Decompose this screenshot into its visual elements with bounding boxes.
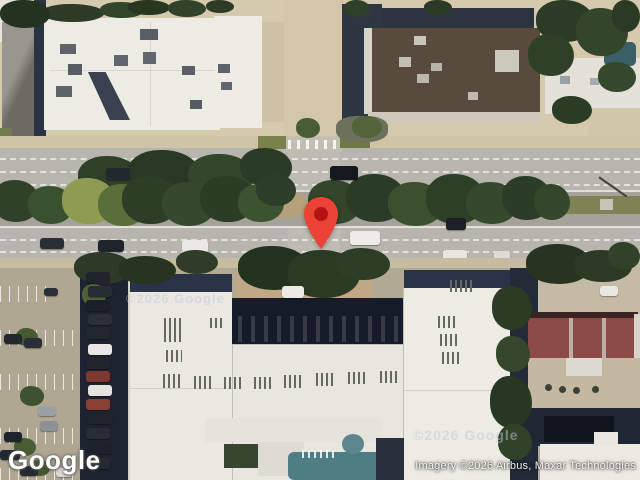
- white-tab-se: [594, 432, 618, 446]
- tree: [42, 4, 104, 22]
- tree: [0, 0, 50, 28]
- tree: [528, 34, 574, 76]
- lot-stripes: [0, 374, 92, 390]
- roof-vent: [380, 371, 400, 383]
- tree: [612, 0, 640, 32]
- pin-body: [304, 197, 338, 249]
- parked-car: [86, 428, 110, 439]
- roof-vent: [254, 377, 274, 389]
- tree: [118, 256, 176, 284]
- tree: [552, 96, 592, 124]
- car: [282, 286, 304, 298]
- plaza-dot: [559, 386, 566, 393]
- tree: [490, 376, 532, 428]
- roof-unit: [56, 86, 72, 97]
- imagery-attribution: Imagery ©2026 Airbus, Maxar Technologies: [415, 460, 636, 472]
- parked-car: [86, 399, 110, 410]
- tree: [20, 386, 44, 406]
- gray-building: [2, 22, 36, 136]
- google-logo[interactable]: Google: [8, 445, 101, 476]
- c-garage-slots: [238, 316, 398, 342]
- tree: [336, 248, 390, 280]
- tree: [598, 62, 636, 92]
- tree: [206, 0, 234, 13]
- car: [600, 286, 618, 296]
- roof-unit: [143, 52, 156, 64]
- roof-vent: [348, 372, 368, 384]
- roof-vent: [224, 377, 244, 389]
- plaza-structure: [566, 358, 602, 376]
- tree: [168, 0, 206, 17]
- parked-car: [88, 314, 112, 325]
- roof-vent: [194, 376, 214, 389]
- map-viewport: ©2026 Google ©2026 Google Google Imagery…: [0, 0, 640, 480]
- roof-unit: [414, 36, 426, 45]
- parked-car: [86, 328, 110, 339]
- car: [40, 238, 64, 249]
- car: [38, 406, 56, 416]
- tree: [424, 0, 452, 15]
- utility-box: [600, 199, 613, 210]
- roof-vent: [284, 375, 304, 388]
- parked-car: [88, 344, 112, 355]
- car: [4, 432, 22, 442]
- roof-unit: [68, 64, 82, 75]
- car: [330, 166, 358, 180]
- parked-car: [86, 272, 110, 283]
- roof-unit: [218, 64, 230, 73]
- car: [24, 338, 42, 348]
- building-b-penthouse: [495, 50, 519, 72]
- tree: [496, 336, 530, 372]
- car: [106, 168, 130, 180]
- redroof-edge: [634, 314, 640, 358]
- redroof-break: [602, 318, 606, 358]
- roof-unit: [431, 63, 442, 71]
- c-seam: [130, 388, 232, 389]
- plaza-dot: [545, 384, 552, 391]
- tree: [176, 250, 218, 274]
- roof-vent: [450, 280, 472, 292]
- parked-car: [88, 286, 112, 297]
- pool-round: [342, 434, 364, 454]
- car: [4, 334, 22, 344]
- roof-unit: [190, 100, 202, 109]
- car: [446, 218, 466, 230]
- parked-car: [88, 413, 112, 424]
- tree: [492, 286, 532, 330]
- parked-car: [86, 371, 110, 382]
- roof-vent: [163, 374, 183, 388]
- tree: [344, 0, 370, 17]
- building-b-walk-bottom: [368, 112, 540, 122]
- pin-dot: [314, 207, 328, 221]
- car: [98, 240, 124, 252]
- lounges: [302, 450, 336, 458]
- roof-unit: [221, 82, 232, 90]
- courtyard-shadow: [376, 438, 404, 480]
- plaza-dot: [573, 387, 580, 394]
- roof-vent: [316, 373, 336, 386]
- plaza-dot: [592, 386, 599, 393]
- copyright-watermark: ©2026 Google: [126, 291, 225, 306]
- car: [44, 288, 58, 296]
- tree: [256, 174, 296, 206]
- map-pin-icon[interactable]: [304, 197, 338, 249]
- car: [40, 421, 58, 431]
- car: [350, 231, 380, 245]
- red-roof: [528, 318, 638, 358]
- roof-vent: [438, 316, 458, 328]
- copyright-watermark: ©2026 Google: [413, 427, 519, 443]
- tree: [608, 242, 640, 270]
- roof-unit: [468, 92, 478, 100]
- roof-unit: [140, 29, 158, 40]
- tree: [128, 0, 170, 15]
- roof-vent: [164, 318, 184, 342]
- roof-unit: [560, 76, 570, 84]
- roof-vent: [166, 350, 182, 362]
- roof-unit: [182, 66, 195, 75]
- roof-unit: [399, 57, 411, 67]
- roof-unit: [417, 74, 429, 83]
- redroof-break: [569, 318, 573, 358]
- roof-unit: [114, 55, 128, 66]
- roof-vent: [210, 318, 224, 328]
- tree: [534, 184, 570, 220]
- c-seam: [232, 344, 404, 345]
- crosswalk: [288, 140, 340, 149]
- roof-vent: [442, 352, 460, 364]
- parked-car: [86, 300, 110, 311]
- parked-car: [88, 385, 112, 396]
- roof-vent: [440, 334, 460, 346]
- parked-car: [86, 358, 110, 369]
- courtyard-planter: [224, 444, 260, 468]
- roof-unit: [60, 44, 76, 54]
- tree: [296, 118, 320, 138]
- tree: [352, 116, 382, 138]
